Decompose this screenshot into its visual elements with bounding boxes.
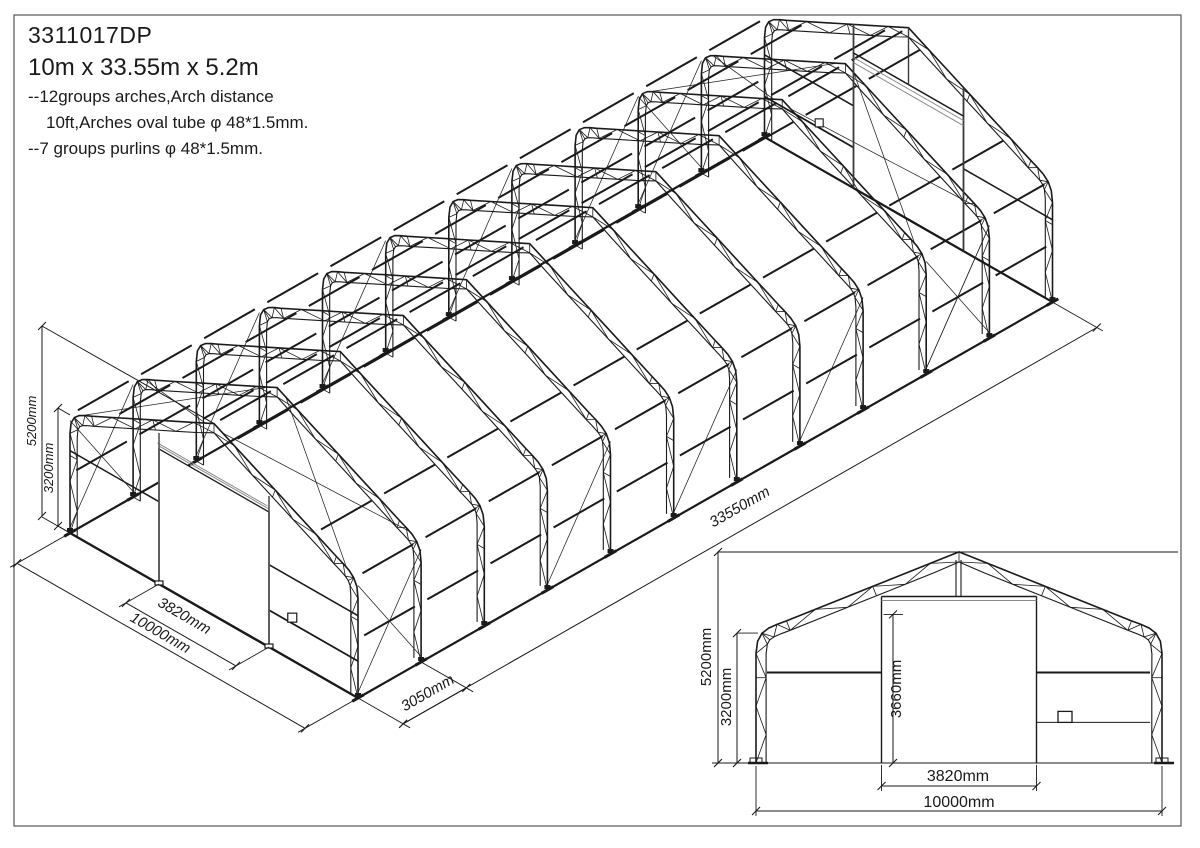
title-block: 3311017DP 10m x 33.55m x 5.2m --12groups…: [28, 20, 308, 162]
overall-size: 10m x 33.55m x 5.2m: [28, 52, 308, 84]
elev-dim-door-height: 3660mm: [888, 660, 905, 718]
front-elevation-view: [748, 552, 1174, 763]
elev-dim-total-height: 5200mm: [698, 628, 715, 686]
note-purlins: --7 groups purlins φ 48*1.5mm.: [28, 136, 308, 162]
iso-dim-eave-height: 3200mm: [41, 443, 56, 494]
note-arches-line2: 10ft,Arches oval tube φ 48*1.5mm.: [28, 110, 308, 136]
iso-dim-total-length: 33550mm: [707, 483, 773, 531]
iso-dim-bay-spacing: 3050mm: [398, 671, 457, 715]
drawing-sheet: 5200mm 3200mm 3820mm 10000mm 3050mm 3355…: [0, 0, 1200, 848]
elev-dim-door-width: 3820mm: [927, 768, 989, 785]
model-number: 3311017DP: [28, 20, 308, 50]
elev-dim-eave-height: 3200mm: [718, 668, 735, 726]
elev-dim-total-width: 10000mm: [923, 794, 994, 811]
note-arches-line1: --12groups arches,Arch distance: [28, 84, 308, 110]
iso-dim-total-height: 5200mm: [24, 396, 39, 447]
